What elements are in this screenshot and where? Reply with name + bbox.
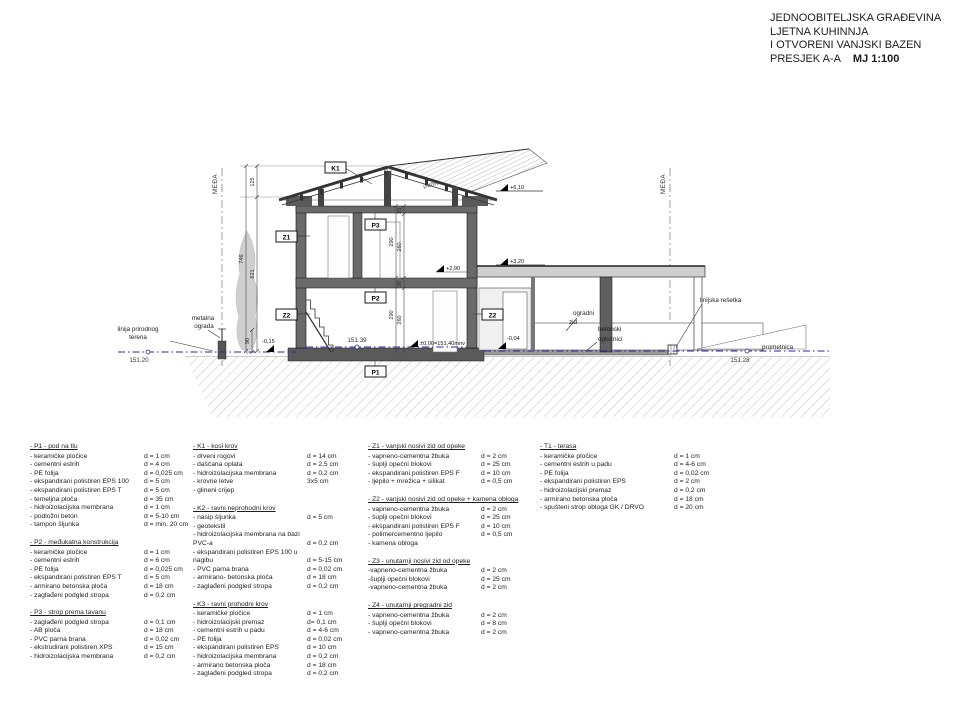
legend-item: - zaglađeni podgled stropad = 0,1 cm	[30, 619, 196, 628]
interior-wall	[353, 213, 362, 278]
legend-item-value: d = 0,5 cm	[481, 478, 533, 487]
legend-item-value: d = 15 cm	[144, 644, 196, 653]
legend-item-label: - keramičke pločice	[540, 453, 672, 462]
legend-item: - ekspandirani polistiren EPS 100 u nagi…	[193, 549, 359, 566]
legend-block: - T1 - terasa- keramičke pločiced = 1 cm…	[540, 443, 726, 513]
metal-fence	[218, 329, 226, 359]
legend-item: - polimercementno ljepilod = 0,5 cm	[368, 531, 533, 540]
level-marker-floor	[355, 345, 359, 349]
legend-item: - tampon šljunkad = min. 20 cm	[30, 521, 196, 530]
legend-item-value: d = 0,2 cm	[307, 470, 359, 479]
ridge-post	[384, 171, 391, 206]
legend-item-value: d = 0,02 cm	[144, 636, 196, 645]
legend-item: - armirano betonska pločad = 18 cm	[30, 583, 196, 592]
legend-item: - ekspandirani polistiren EPS Fd = 10 cm	[368, 470, 533, 479]
legend-item-value: d = 2 cm	[481, 567, 533, 576]
legend-item-label: - armirano betonska ploča	[540, 496, 672, 505]
legend-item-value: d = 4 cm	[144, 461, 196, 470]
legend-item: - zaglađeni podgled stropad = 0,2 cm	[193, 583, 359, 592]
tag-z2-left: Z2	[283, 313, 291, 320]
legend-item: - armirano betonska pločad = 18 cm	[540, 496, 726, 505]
legend-item-label: - hidroizolacijska membrana na bazi PVC-…	[193, 531, 305, 548]
legend-item-value: d = 1 cm	[144, 549, 196, 558]
legend-item-value: d = 18 cm	[674, 496, 726, 505]
terrain-hatch	[185, 357, 830, 418]
legend-item-value: d = 0,2 cm	[307, 653, 359, 662]
annotation-pavers-1: betonski	[598, 326, 621, 333]
legend-block-title: - T1 - terasa	[540, 443, 726, 452]
legend-item-label: - armirano- betonska ploča	[193, 574, 305, 583]
legend-item-value: d = 0,2 cm	[307, 583, 359, 592]
legend-block: - Z3 - unutarnji nosivi zid od opeke-vap…	[368, 558, 533, 593]
legend-item: - cementni estrih u padud = 4-6 cm	[193, 627, 359, 636]
annotation-pavers-2: opločnici	[598, 336, 623, 343]
kitchen-end-wall	[531, 277, 535, 350]
annotation-terrain-line-1: linija prirodnog	[118, 326, 159, 333]
legend-item-value: d = 0,1 cm	[144, 619, 196, 628]
legend-item-label: - vapneno-cementna žbuka	[368, 453, 479, 462]
legend-item: - nasip šljunkad = 5 cm	[193, 514, 359, 523]
house-structure	[286, 196, 488, 352]
legend-block-title: - K3 - ravni prohodni krov	[193, 601, 359, 610]
legend-item-label: - cementni estrih u padu	[193, 627, 305, 636]
legend-item: - hidroizolacijski premazd = 0,2 cm	[540, 487, 726, 496]
legend-item-value: d = 5 cm	[144, 487, 196, 496]
annotation-road: prometnica	[762, 344, 794, 351]
legend-item: - PE folijad = 0,02 cm	[540, 470, 726, 479]
legend-item-label: - nasip šljunka	[193, 514, 305, 523]
legend-item: - daščana oplatad = 2.5 cm	[193, 461, 359, 470]
legend-item-label: -šuplji opečni blokovi	[368, 576, 479, 585]
legend-item-label: - geotekstil	[193, 523, 305, 532]
legend-item: - keramičke pločiced = 1 cm	[193, 610, 359, 619]
legend-item: - keramičke pločiced = 1 cm	[30, 549, 196, 558]
legend-item-value: d = 5-15 cm	[307, 557, 359, 566]
legend-item-value: d = 5 cm	[307, 514, 359, 523]
legend-item-value: d = 0,2 cm	[144, 592, 196, 601]
tag-z2-right: Z2	[489, 313, 497, 320]
dim-290-lower: 290	[389, 310, 395, 319]
legend-item-label: - drveni rogovi	[193, 453, 305, 462]
tree	[236, 231, 257, 354]
legend-item-label: - vapneno-cementna žbuka	[368, 629, 479, 638]
level-marker-road	[745, 349, 749, 353]
legend-item-label: - hidroizolacijski premaz	[540, 487, 672, 496]
legend-item-value: d = 18 cm	[307, 574, 359, 583]
annotation-garden-wall-2: zid	[569, 319, 578, 326]
legend-item: - kamena obloga	[368, 540, 533, 549]
drawing-sheet: JEDNOOBITELJSKA GRAĐEVINA LJETNA KUHINNJ…	[0, 0, 960, 706]
dim-260-lower: 260	[397, 315, 403, 324]
legend-item-label: - hidroizolacijska membrana	[193, 470, 305, 479]
legend: - P1 - pod na tlu- keramičke pločiced = …	[0, 443, 960, 703]
legend-item-label: - PE folija	[30, 566, 142, 575]
legend-item: - spušteni strop obloga GK / DRVOd = 20 …	[540, 504, 726, 513]
dim-260-upper: 260	[397, 242, 403, 251]
legend-item-value: 3x5 cm	[307, 478, 359, 487]
tag-z1: Z1	[283, 235, 291, 242]
left-wall	[296, 197, 306, 348]
legend-item: - šuplji opečni blokovid = 25 cm	[368, 461, 533, 470]
stairs	[306, 300, 333, 352]
legend-item: - podložni betond = 5-10 cm	[30, 513, 196, 522]
tag-p1: P1	[371, 370, 379, 377]
legend-item: - hidroizolacijska membranad = 0,2 cm	[30, 653, 196, 662]
legend-item: - AB pločad = 18 cm	[30, 627, 196, 636]
legend-item: - šuplji opečni blokovid = 25 cm	[368, 514, 533, 523]
legend-item-value: d = 18 cm	[144, 583, 196, 592]
legend-block-title: - K1 - kosi krov	[193, 443, 359, 452]
legend-item: -vapneno-cementna žbukad = 2 cm	[368, 567, 533, 576]
legend-item-label: - ekspandirani polistiren EPS T	[30, 574, 142, 583]
dim-90: 90	[245, 338, 251, 344]
legend-item-label: - hidroizolacijski premaz	[193, 619, 305, 628]
legend-item-value: d= 0,1 cm	[307, 619, 359, 628]
legend-item-label: - cementni estrih u padu	[540, 461, 672, 470]
annotation-fence-2: ograda	[194, 323, 214, 330]
legend-item-value: d = min. 20 cm	[144, 521, 196, 530]
dim-621: 621	[250, 269, 256, 278]
legend-item-label: - podložni beton	[30, 513, 142, 522]
legend-item-label: -vapneno-cementna žbuka	[368, 584, 479, 593]
legend-item-value: d = 0,2 cm	[307, 670, 359, 679]
elevation-floor2: +2,90	[446, 266, 460, 272]
legend-item-label: - armirano betonska ploča	[193, 662, 305, 671]
legend-item-label: - ekspandirani polistiren EPS	[540, 478, 672, 487]
level-road: 151.28	[730, 357, 750, 364]
terrace-column	[694, 277, 702, 350]
dim-125: 125	[250, 177, 256, 186]
right-wing	[477, 266, 806, 354]
legend-item-value: d = 2.5 cm	[307, 461, 359, 470]
legend-item: - PVC parna branad = 0,02 cm	[193, 566, 359, 575]
legend-item-label: - šuplji opečni blokovi	[368, 461, 479, 470]
legend-block: - K3 - ravni prohodni krov- keramičke pl…	[193, 601, 359, 679]
legend-item-value: d = 8 cm	[481, 620, 533, 629]
legend-block-title: - Z4 - unutarnji pregradni zid	[368, 602, 533, 611]
legend-item-value: d = 0,025 cm	[144, 470, 196, 479]
legend-item-label: - zaglađeni podgled stropa	[30, 592, 142, 601]
legend-block: - K2 - ravni neprohodni krov- nasip šlju…	[193, 505, 359, 592]
legend-column: - T1 - terasa- keramičke pločiced = 1 cm…	[540, 443, 726, 522]
legend-item: - ekspandirani polistiren EPS Fd = 10 cm	[368, 523, 533, 532]
legend-item-value: d = 1 cm	[674, 453, 726, 462]
legend-item-label: - ekspandirani polistiren EPS T	[30, 487, 142, 496]
roof	[279, 149, 547, 206]
legend-item-value: d = 0,02 cm	[307, 636, 359, 645]
legend-item-label: - daščana oplata	[193, 461, 305, 470]
legend-column: - K1 - kosi krov- drveni rogovid = 14 cm…	[193, 443, 359, 688]
legend-item-value: d = 18 cm	[144, 627, 196, 636]
legend-item-value: d = 2 cm	[481, 453, 533, 462]
legend-item-value: d = 2 cm	[481, 506, 533, 515]
legend-item: - zaglađeni podgled stropad = 0,2 cm	[30, 592, 196, 601]
legend-item-value: d = 5 cm	[144, 574, 196, 583]
legend-item: -šuplji opečni blokovid = 25 cm	[368, 576, 533, 585]
tag-p2: P2	[371, 296, 379, 303]
legend-item-label: - polimercementno ljepilo	[368, 531, 479, 540]
legend-item-value: d = 0,2 cm	[307, 540, 359, 549]
legend-item-value: d = 0,5 cm	[481, 531, 533, 540]
elevation-minus-right: -0,04	[507, 336, 520, 342]
legend-item-label: - hidroizolacijska membrana	[30, 653, 142, 662]
boundary-label-left: MEĐA	[212, 174, 219, 194]
legend-item-label: - PVC parna brana	[193, 566, 305, 575]
legend-item-label: - PE folija	[193, 636, 305, 645]
legend-item-value: d = 25 cm	[481, 461, 533, 470]
legend-item-value: d = 5 cm	[144, 478, 196, 487]
legend-item-label: - ekspandirani polistiren EPS	[193, 644, 305, 653]
flat-roof-slab	[477, 266, 705, 277]
legend-item: - zaglađeni podgled stropad = 0,2 cm	[193, 670, 359, 679]
legend-item-label: - temeljna ploča	[30, 496, 142, 505]
legend-item: - geotekstil	[193, 523, 359, 532]
legend-item-label: - glineni crijep	[193, 487, 305, 496]
legend-block-title: - P1 - pod na tlu	[30, 443, 196, 452]
legend-block: - Z1 - vanjski nosivi zid od opeke- vapn…	[368, 443, 533, 487]
tag-p3: P3	[371, 223, 379, 230]
legend-item-label: -vapneno-cementna žbuka	[368, 567, 479, 576]
legend-block-title: - K2 - ravni neprohodni krov	[193, 505, 359, 514]
legend-column: - Z1 - vanjski nosivi zid od opeke- vapn…	[368, 443, 533, 646]
legend-item-label: - PE folija	[540, 470, 672, 479]
legend-item: - šuplji opečni blokovid = 8 cm	[368, 620, 533, 629]
floor-slab	[296, 278, 477, 288]
legend-item-label: - keramičke pločice	[193, 610, 305, 619]
legend-item: - keramičke pločiced = 1 cm	[540, 453, 726, 462]
legend-item-value: d = 10 cm	[481, 470, 533, 479]
legend-item-label: - hidroizolacijska membrana	[30, 504, 142, 513]
legend-column: - P1 - pod na tlu- keramičke pločiced = …	[30, 443, 196, 671]
legend-item: - temeljna pločad = 35 cm	[30, 496, 196, 505]
legend-item-value: d = 6 cm	[144, 557, 196, 566]
ceiling-slab	[296, 206, 477, 213]
legend-item: - ekspandirani polistiren EPS Td = 5 cm	[30, 487, 196, 496]
legend-item-label: - šuplji opečni blokovi	[368, 514, 479, 523]
legend-item-label: - armirano betonska ploča	[30, 583, 142, 592]
legend-item: - PE folijad = 0,02 cm	[193, 636, 359, 645]
legend-item-label: - AB ploča	[30, 627, 142, 636]
legend-item-label: - vapneno-cementna žbuka	[368, 612, 479, 621]
legend-item: - ekspandirani polistiren EPS 100d = 5 c…	[30, 478, 196, 487]
right-wall	[467, 197, 477, 348]
legend-item-label: - zaglađeni podgled stropa	[30, 619, 142, 628]
dim-746: 746	[239, 254, 245, 263]
legend-item-value: d = 18 cm	[307, 662, 359, 671]
legend-item-label: - ljepilo + mrežica + silikat	[368, 478, 479, 487]
legend-item-label: - ekspandirani polistiren EPS 100	[30, 478, 142, 487]
legend-block: - P1 - pod na tlu- keramičke pločiced = …	[30, 443, 196, 530]
legend-item: - hidroizolacijska membrana na bazi PVC-…	[193, 531, 359, 548]
legend-block-title: - Z1 - vanjski nosivi zid od opeke	[368, 443, 533, 452]
legend-item-value: d = 1 cm	[144, 453, 196, 462]
legend-item-label: - šuplji opečni blokovi	[368, 620, 479, 629]
legend-item: - ekstrudirani polistiren XPSd = 15 cm	[30, 644, 196, 653]
legend-item-value: d = 5-10 cm	[144, 513, 196, 522]
legend-item-value: d = 2 cm	[674, 478, 726, 487]
legend-item-label: - keramičke pločice	[30, 453, 142, 462]
legend-item-value: d = 0,02 cm	[307, 566, 359, 575]
legend-block: - Z4 - unutarnji pregradni zid- vapneno-…	[368, 602, 533, 637]
legend-item-label: - ekspandirani polistiren EPS F	[368, 523, 479, 532]
legend-item-value: d = 0,2 cm	[674, 487, 726, 496]
upper-door-1	[328, 216, 349, 278]
legend-item: - PE folijad = 0,025 cm	[30, 566, 196, 575]
legend-item: -vapneno-cementna žbukad = 2 cm	[368, 584, 533, 593]
annotation-grate: linijska rešetka	[700, 297, 742, 304]
legend-item-value: d = 20 cm	[674, 504, 726, 513]
legend-item: - glineni crijep	[193, 487, 359, 496]
legend-item-value: d = 35 cm	[144, 496, 196, 505]
legend-item-value: d = 25 cm	[481, 576, 533, 585]
annotation-terrain-line-2: terena	[129, 334, 147, 341]
legend-block: - K1 - kosi krov- drveni rogovid = 14 cm…	[193, 443, 359, 496]
level-floor: 151.39	[347, 337, 367, 344]
legend-item-value: d = 2 cm	[481, 612, 533, 621]
boundary-label-right: MEĐA	[660, 174, 667, 194]
legend-item: - armirano betonska pločad = 18 cm	[193, 662, 359, 671]
legend-item: - cementni estrihd = 6 cm	[30, 557, 196, 566]
legend-item-label: - ekstrudirani polistiren XPS	[30, 644, 142, 653]
dim-33: 33	[397, 208, 403, 214]
legend-item: - ljepilo + mrežica + silikatd = 0,5 cm	[368, 478, 533, 487]
legend-item-value: d = 14 cm	[307, 453, 359, 462]
level-marker-left	[146, 350, 150, 354]
legend-item-value: d = 1 cm	[307, 610, 359, 619]
legend-item-label: - zaglađeni podgled stropa	[193, 583, 305, 592]
legend-item-label: - PVC parna brana	[30, 636, 142, 645]
elevation-minus-left: -0,15	[262, 339, 275, 345]
legend-block-title: - P3 - strop prema tavanu	[30, 609, 196, 618]
legend-item-label: - ekspandirani polistiren EPS 100 u nagi…	[193, 549, 305, 566]
legend-item: - hidroizolacijska membranad = 0,2 cm	[193, 470, 359, 479]
legend-item-label: - cementni estrih	[30, 461, 142, 470]
legend-block-title: - Z3 - unutarnji nosivi zid od opeke	[368, 558, 533, 567]
legend-item: - vapneno-cementna žbukad = 2 cm	[368, 453, 533, 462]
legend-block: - P3 - strop prema tavanu- zaglađeni pod…	[30, 609, 196, 662]
legend-item-label: - cementni estrih	[30, 557, 142, 566]
legend-item: - PVC parna branad = 0,02 cm	[30, 636, 196, 645]
legend-item-value: d = 10 cm	[481, 523, 533, 532]
legend-item-label: - spušteni strop obloga GK / DRVO	[540, 504, 672, 513]
dim-290-upper: 290	[389, 237, 395, 246]
legend-item: - armirano- betonska pločad = 18 cm	[193, 574, 359, 583]
legend-item: - ekspandirani polistiren EPS Td = 5 cm	[30, 574, 196, 583]
level-terrain-left: 151.20	[129, 357, 149, 364]
legend-item-label: - tampon šljunka	[30, 521, 142, 530]
legend-item-label: - ekspandirani polistiren EPS F	[368, 470, 479, 479]
legend-item-value: d = 0,02 cm	[674, 470, 726, 479]
annotation-garden-wall-1: ogradni	[573, 310, 594, 317]
legend-item: - hidroizolacijska membranad = 1 cm	[30, 504, 196, 513]
legend-item: - hidroizolacijski premazd= 0,1 cm	[193, 619, 359, 628]
legend-item: - cementni estrihd = 4 cm	[30, 461, 196, 470]
legend-block: - P2 - međukatna konstrukcija- keramičke…	[30, 539, 196, 600]
linear-grate	[668, 345, 677, 354]
legend-item-label: - PE folija	[30, 470, 142, 479]
legend-item-value: d = 2 cm	[481, 629, 533, 638]
elevation-flat-roof: +3,20	[510, 259, 524, 265]
legend-item-label: - vapneno-cementna žbuka	[368, 506, 479, 515]
legend-item: - keramičke pločiced = 1 cm	[30, 453, 196, 462]
legend-item-value: d = 0,2 cm	[144, 653, 196, 662]
legend-item-value: d = 4-6 cm	[674, 461, 726, 470]
legend-item-value: d = 1 cm	[144, 504, 196, 513]
legend-item-value: d = 0,025 cm	[144, 566, 196, 575]
dim-46: 46	[384, 169, 390, 175]
legend-block: - Z2 - vanjski nosivi zid od opeke + kam…	[368, 496, 533, 549]
legend-item: - cementni estrih u padud = 4-6 cm	[540, 461, 726, 470]
legend-item: - PE folijad = 0,025 cm	[30, 470, 196, 479]
annotation-fence-1: metalna	[192, 315, 215, 322]
legend-item-value: d = 2 cm	[481, 584, 533, 593]
legend-item-label: - zaglađeni podgled stropa	[193, 670, 305, 679]
legend-item-value: d = 4-6 cm	[307, 627, 359, 636]
elevation-ridge: +6,10	[510, 185, 524, 191]
legend-item: - vapneno-cementna žbukad = 2 cm	[368, 506, 533, 515]
elevation-zero: ±0,00=151,40mnv	[420, 341, 465, 347]
tag-k1: K1	[331, 166, 340, 173]
legend-item-label: - hidroizolacijska membrana	[193, 653, 305, 662]
dim-30: 30	[397, 281, 403, 287]
legend-item-value: d = 10 cm	[307, 644, 359, 653]
legend-item: - ekspandirani polistiren EPSd = 10 cm	[193, 644, 359, 653]
legend-item-label: - keramičke pločice	[30, 549, 142, 558]
legend-item-label: - kamena obloga	[368, 540, 479, 549]
legend-item: - hidroizolacijska membranad = 0,2 cm	[193, 653, 359, 662]
legend-block-title: - Z2 - vanjski nosivi zid od opeke + kam…	[368, 496, 533, 505]
legend-block-title: - P2 - međukatna konstrukcija	[30, 539, 196, 548]
legend-item-value: d = 25 cm	[481, 514, 533, 523]
legend-item: - ekspandirani polistiren EPSd = 2 cm	[540, 478, 726, 487]
legend-item-label: - krovne letve	[193, 478, 305, 487]
legend-item: - krovne letve3x5 cm	[193, 478, 359, 487]
legend-item: - drveni rogovid = 14 cm	[193, 453, 359, 462]
legend-item: - vapneno-cementna žbukad = 2 cm	[368, 629, 533, 638]
legend-item: - vapneno-cementna žbukad = 2 cm	[368, 612, 533, 621]
